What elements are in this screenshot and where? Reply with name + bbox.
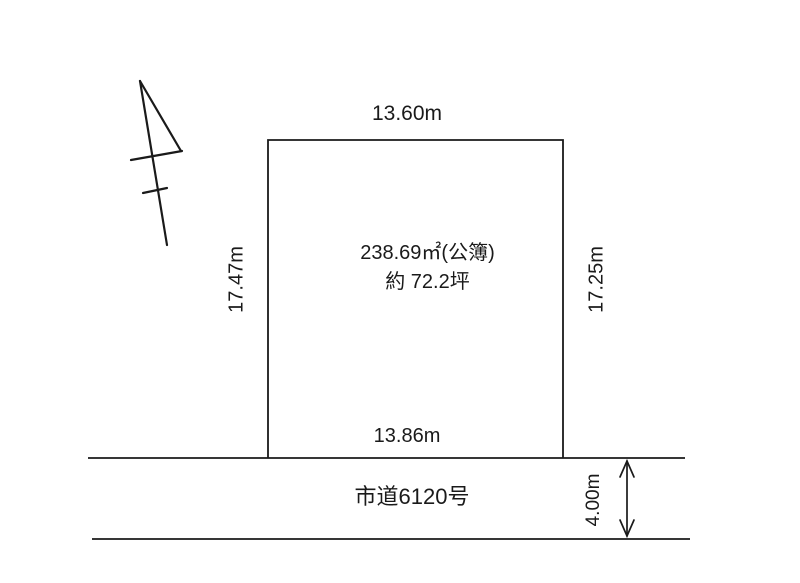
double-arrow-icon	[620, 461, 634, 536]
dimension-bottom-label: 13.86m	[340, 425, 474, 448]
lot-area-text: 238.69㎡(公簿) 約 72.2坪	[305, 239, 550, 297]
dimension-right-label: 17.25m	[586, 220, 609, 340]
lot-diagram: 13.60m 17.47m 17.25m 238.69㎡(公簿) 約 72.2坪…	[0, 0, 800, 583]
lot-outline	[268, 140, 563, 458]
road-width-label: 4.00m	[583, 460, 605, 540]
lot-area-sqm: 238.69㎡(公簿)	[305, 239, 550, 268]
dimension-top-label: 13.60m	[340, 102, 474, 126]
dimension-left-label: 17.47m	[226, 220, 249, 340]
north-arrow-icon	[131, 81, 182, 245]
lot-area-tsubo: 約 72.2坪	[305, 268, 550, 297]
road-name-label: 市道6120号	[312, 479, 512, 511]
